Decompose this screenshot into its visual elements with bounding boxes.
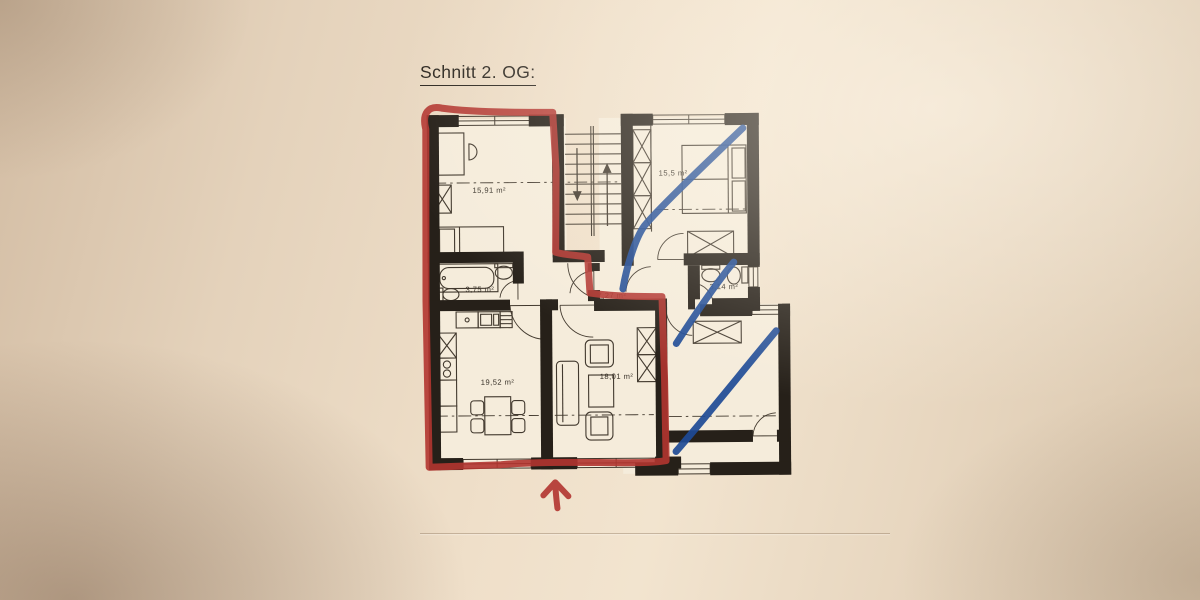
photo-of-floorplan-document: Schnitt 2. OG: bbox=[0, 0, 1200, 600]
paper-edge-shadow bbox=[420, 533, 890, 534]
shadow-overlay bbox=[0, 0, 1200, 600]
